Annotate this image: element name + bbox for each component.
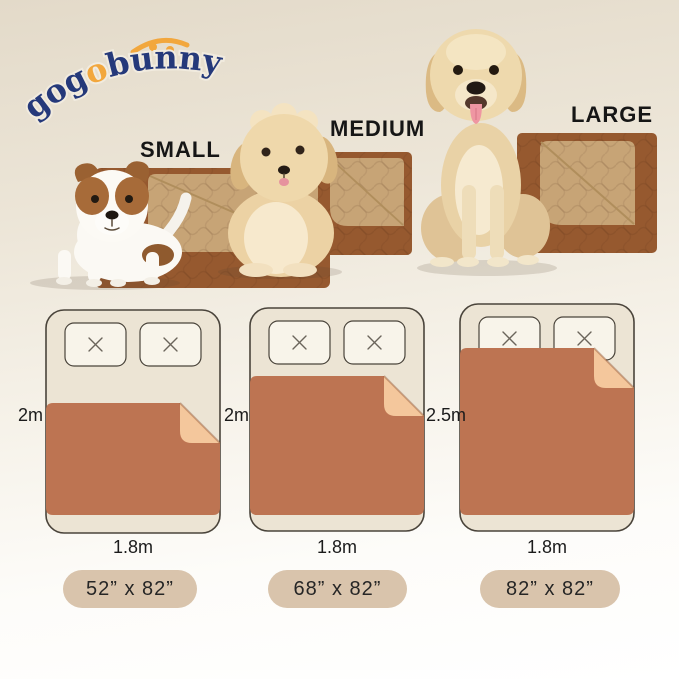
pad-coverage-overlay [460, 348, 634, 515]
pillow [269, 321, 330, 364]
pad-coverage-overlay [46, 403, 220, 515]
size-badge-small: 52” x 82” [63, 570, 197, 608]
bed-length-label-large: 2.5m [426, 406, 466, 424]
bed-diagram-medium [242, 302, 432, 537]
bed-width-label-medium: 1.8m [242, 538, 432, 556]
pad-coverage-overlay [250, 376, 424, 515]
bed-diagram-large [452, 300, 642, 535]
bed-length-label-small: 2m [18, 406, 43, 424]
bed-width-label-small: 1.8m [38, 538, 228, 556]
size-badge-medium: 68” x 82” [268, 570, 407, 608]
product-size-infographic: gogobunny SMALL MEDIUM LARGE [0, 0, 679, 679]
dog-photo-scenes [0, 0, 679, 295]
bed-length-label-medium: 2m [224, 406, 249, 424]
pillow [344, 321, 405, 364]
bed-diagram-small [38, 304, 228, 539]
pillow [140, 323, 201, 366]
pillow [65, 323, 126, 366]
size-badge-large: 82” x 82” [480, 570, 620, 608]
bed-width-label-large: 1.8m [452, 538, 642, 556]
